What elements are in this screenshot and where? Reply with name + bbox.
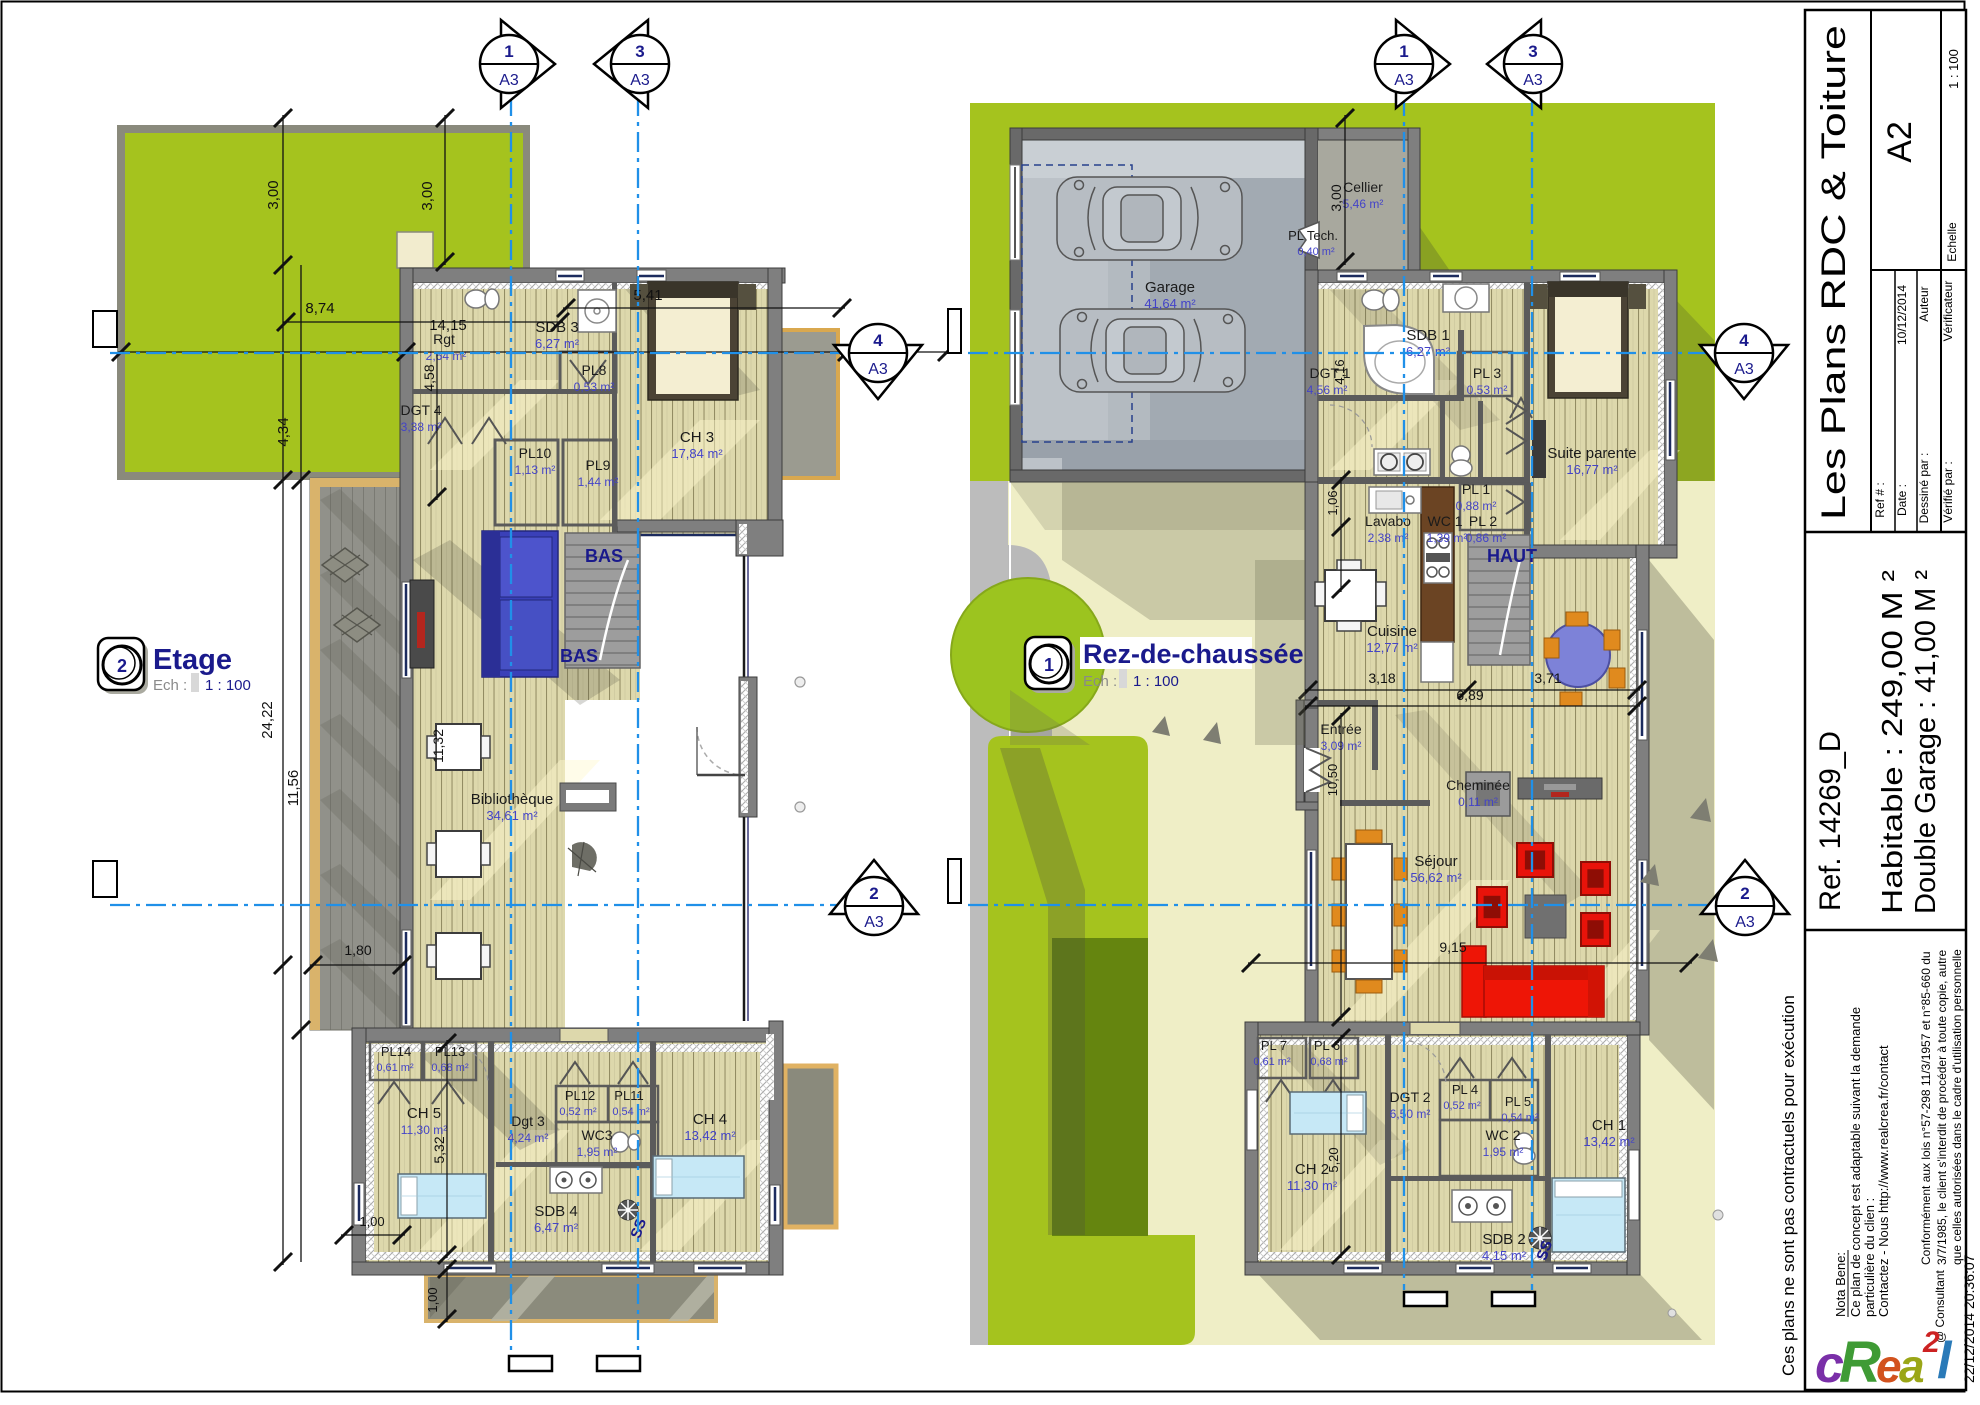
svg-text:SDB 1: SDB 1 bbox=[1406, 327, 1449, 344]
svg-text:Cellier: Cellier bbox=[1343, 179, 1383, 195]
svg-text:Cuisine: Cuisine bbox=[1367, 623, 1417, 640]
svg-text:9,15: 9,15 bbox=[1439, 939, 1466, 955]
svg-text:0,88 m²: 0,88 m² bbox=[1456, 499, 1497, 513]
svg-text:6,27 m²: 6,27 m² bbox=[535, 336, 580, 351]
svg-text:1,80: 1,80 bbox=[344, 942, 371, 958]
svg-text:CH 4: CH 4 bbox=[693, 1111, 727, 1128]
svg-text:6,27 m²: 6,27 m² bbox=[1406, 344, 1451, 359]
svg-text:WC3: WC3 bbox=[581, 1127, 612, 1143]
svg-text:3,00: 3,00 bbox=[419, 181, 436, 210]
svg-text:1,39 m²: 1,39 m² bbox=[1427, 531, 1468, 545]
svg-text:Vérificateur: Vérificateur bbox=[1941, 281, 1955, 342]
svg-text:CH 3: CH 3 bbox=[680, 429, 714, 446]
svg-text:56,62 m²: 56,62 m² bbox=[1410, 870, 1462, 885]
svg-text:Double Garage : 41,00 M ²: Double Garage : 41,00 M ² bbox=[1910, 570, 1942, 914]
svg-text:PL 4: PL 4 bbox=[1452, 1082, 1478, 1097]
svg-text:1: 1 bbox=[1044, 655, 1054, 675]
svg-text:DGT 2: DGT 2 bbox=[1390, 1089, 1431, 1105]
svg-text:PL 6: PL 6 bbox=[1314, 1038, 1340, 1053]
svg-text:4,15 m²: 4,15 m² bbox=[1482, 1248, 1527, 1263]
svg-text:10,50: 10,50 bbox=[1325, 764, 1340, 797]
svg-text:PL9: PL9 bbox=[586, 457, 611, 473]
svg-text:1,95 m²: 1,95 m² bbox=[577, 1145, 618, 1159]
svg-text:11,30 m²: 11,30 m² bbox=[1287, 1178, 1338, 1193]
svg-text:HAUT: HAUT bbox=[1487, 546, 1537, 566]
svg-text:0,54 m²: 0,54 m² bbox=[612, 1106, 650, 1118]
svg-text:3: 3 bbox=[635, 42, 644, 61]
svg-text:1 : 100: 1 : 100 bbox=[205, 677, 251, 694]
svg-text:Ce plan de concept est adaptab: Ce plan de concept est adaptable suivant… bbox=[1848, 1007, 1863, 1317]
svg-text:12,77 m²: 12,77 m² bbox=[1366, 640, 1418, 655]
svg-text:0,61 m²: 0,61 m² bbox=[376, 1062, 414, 1074]
svg-text:PL 2: PL 2 bbox=[1469, 513, 1497, 529]
svg-text:Dgt 3: Dgt 3 bbox=[511, 1113, 545, 1129]
svg-text:41,64 m²: 41,64 m² bbox=[1144, 296, 1196, 311]
svg-text:1,06: 1,06 bbox=[1325, 490, 1340, 515]
svg-text:PL14: PL14 bbox=[381, 1044, 411, 1059]
svg-text:A3: A3 bbox=[1734, 361, 1754, 378]
svg-text:0,54 m²: 0,54 m² bbox=[1501, 1112, 1539, 1124]
svg-text:BAS: BAS bbox=[585, 546, 623, 566]
svg-text:2: 2 bbox=[1740, 884, 1749, 903]
svg-text:PL12: PL12 bbox=[565, 1088, 595, 1103]
svg-text:Ech :: Ech : bbox=[153, 677, 187, 694]
svg-text:1,95 m²: 1,95 m² bbox=[1483, 1145, 1524, 1159]
svg-text:Vérifié par :: Vérifié par : bbox=[1941, 461, 1955, 522]
svg-text:8,74: 8,74 bbox=[305, 300, 334, 317]
svg-text:particulière du clien :: particulière du clien : bbox=[1862, 1198, 1877, 1317]
svg-text:que celles autorisées dans le: que celles autorisées dans le cadre d'ut… bbox=[1950, 949, 1964, 1265]
svg-text:0,53 m²: 0,53 m² bbox=[574, 380, 615, 394]
svg-text:PL10: PL10 bbox=[519, 445, 552, 461]
svg-text:PL 5: PL 5 bbox=[1505, 1094, 1531, 1109]
svg-text:1: 1 bbox=[1399, 42, 1408, 61]
svg-text:A3: A3 bbox=[630, 72, 650, 89]
svg-text:Conformément aux lois n°57-298: Conformément aux lois n°57-298 11/3/1957… bbox=[1919, 951, 1933, 1265]
svg-text:3,00: 3,00 bbox=[1328, 184, 1344, 211]
svg-text:Garage: Garage bbox=[1145, 279, 1195, 296]
svg-text:10/12/2014: 10/12/2014 bbox=[1895, 285, 1909, 345]
svg-text:Nota Bene:: Nota Bene: bbox=[1833, 1252, 1848, 1317]
svg-text:PL8: PL8 bbox=[582, 362, 607, 378]
svg-text:11,56: 11,56 bbox=[285, 770, 302, 806]
svg-text:PL Tech.: PL Tech. bbox=[1288, 228, 1338, 243]
svg-text:6,89: 6,89 bbox=[1456, 687, 1483, 703]
svg-text:Date :: Date : bbox=[1895, 484, 1909, 516]
svg-text:Ref # :: Ref # : bbox=[1873, 482, 1887, 517]
svg-text:SDB 2: SDB 2 bbox=[1482, 1231, 1525, 1248]
svg-text:0,40 m²: 0,40 m² bbox=[1297, 246, 1335, 258]
svg-text:4,58: 4,58 bbox=[421, 364, 437, 391]
svg-text:Etage: Etage bbox=[153, 644, 232, 676]
svg-text:4,24 m²: 4,24 m² bbox=[508, 1131, 549, 1145]
svg-text:1,13 m²: 1,13 m² bbox=[515, 463, 556, 477]
svg-text:4: 4 bbox=[1739, 331, 1749, 350]
svg-text:A3: A3 bbox=[864, 914, 884, 931]
svg-text:e: e bbox=[1876, 1340, 1902, 1392]
svg-text:Ces plans ne sont pas contract: Ces plans ne sont pas contractuels pour … bbox=[1779, 995, 1798, 1376]
svg-text:1,00: 1,00 bbox=[425, 1287, 440, 1312]
svg-text:Contactez - Nous http://www.re: Contactez - Nous http://www.realcrea.fr/… bbox=[1876, 1045, 1891, 1317]
svg-text:2: 2 bbox=[117, 656, 127, 676]
svg-text:A2: A2 bbox=[1881, 121, 1919, 163]
svg-text:WC 2: WC 2 bbox=[1486, 1127, 1521, 1143]
svg-text:0,11 m²: 0,11 m² bbox=[1458, 795, 1498, 809]
svg-text:6,50 m²: 6,50 m² bbox=[1390, 1107, 1431, 1121]
svg-text:R: R bbox=[1839, 1330, 1881, 1395]
svg-text:Les Plans RDC & Toiture: Les Plans RDC & Toiture bbox=[1815, 25, 1853, 520]
svg-text:4,34: 4,34 bbox=[275, 417, 292, 446]
svg-text:Rez-de-chaussée: Rez-de-chaussée bbox=[1083, 639, 1304, 669]
svg-text:0,52 m²: 0,52 m² bbox=[1443, 1100, 1481, 1112]
svg-text:5,32: 5,32 bbox=[431, 1136, 447, 1163]
svg-text:3,38 m²: 3,38 m² bbox=[401, 420, 442, 434]
svg-text:Dessiné par :: Dessiné par : bbox=[1917, 453, 1931, 524]
svg-text:CH 2: CH 2 bbox=[1295, 1161, 1329, 1178]
svg-text:3,00: 3,00 bbox=[265, 180, 282, 209]
svg-text:A3: A3 bbox=[1523, 72, 1543, 89]
svg-text:11,30 m²: 11,30 m² bbox=[401, 1123, 447, 1137]
svg-text:PL 7: PL 7 bbox=[1261, 1038, 1287, 1053]
svg-text:1: 1 bbox=[504, 42, 513, 61]
svg-text:16,77 m²: 16,77 m² bbox=[1566, 462, 1618, 477]
svg-text:WC 1: WC 1 bbox=[1428, 513, 1463, 529]
svg-text:PL11: PL11 bbox=[614, 1088, 643, 1103]
svg-text:1 : 100: 1 : 100 bbox=[1133, 673, 1179, 690]
svg-text:1,00: 1,00 bbox=[359, 1214, 384, 1229]
svg-text:0,86 m²: 0,86 m² bbox=[1466, 531, 1507, 545]
svg-text:CH 5: CH 5 bbox=[407, 1105, 441, 1122]
svg-text:3,71: 3,71 bbox=[1534, 670, 1561, 686]
svg-text:3,18: 3,18 bbox=[1368, 670, 1395, 686]
svg-text:1,44 m²: 1,44 m² bbox=[578, 475, 619, 489]
svg-text:Ref. 14269_D: Ref. 14269_D bbox=[1814, 731, 1847, 911]
svg-text:2: 2 bbox=[869, 884, 878, 903]
svg-text:A3: A3 bbox=[1735, 914, 1755, 931]
svg-text:a: a bbox=[1899, 1340, 1925, 1392]
svg-text:0,52 m²: 0,52 m² bbox=[559, 1106, 597, 1118]
svg-text:Ech :: Ech : bbox=[1083, 673, 1117, 690]
svg-text:A3: A3 bbox=[499, 72, 519, 89]
svg-text:A3: A3 bbox=[868, 361, 888, 378]
svg-text:3/7/1985, le client s'interdit: 3/7/1985, le client s'interdit de procéd… bbox=[1935, 950, 1949, 1265]
svg-text:34,61 m²: 34,61 m² bbox=[486, 808, 538, 823]
svg-text:SDB 4: SDB 4 bbox=[534, 1203, 577, 1220]
svg-text:4,16: 4,16 bbox=[1332, 359, 1347, 384]
svg-text:l: l bbox=[1937, 1332, 1953, 1390]
svg-text:22/12/2014 20:36:07: 22/12/2014 20:36:07 bbox=[1961, 1254, 1977, 1383]
svg-text:24,22: 24,22 bbox=[259, 701, 276, 739]
svg-text:0,68 m²: 0,68 m² bbox=[431, 1062, 469, 1074]
svg-text:Echelle: Echelle bbox=[1945, 222, 1959, 262]
svg-text:A3: A3 bbox=[1394, 72, 1414, 89]
svg-text:2,38 m²: 2,38 m² bbox=[1368, 531, 1409, 545]
svg-text:PL 3: PL 3 bbox=[1473, 365, 1501, 381]
svg-text:1 : 100: 1 : 100 bbox=[1946, 49, 1961, 89]
svg-text:Auteur: Auteur bbox=[1917, 286, 1931, 321]
svg-text:11,32: 11,32 bbox=[430, 729, 446, 763]
svg-text:4: 4 bbox=[873, 331, 883, 350]
svg-text:3: 3 bbox=[1528, 42, 1537, 61]
svg-text:13,42 m²: 13,42 m² bbox=[684, 1128, 736, 1143]
svg-text:DGT 4: DGT 4 bbox=[401, 402, 442, 418]
svg-text:5,20: 5,20 bbox=[1326, 1147, 1341, 1172]
svg-text:6,47 m²: 6,47 m² bbox=[534, 1220, 579, 1235]
svg-text:PL 1: PL 1 bbox=[1462, 481, 1490, 497]
svg-text:Suite parente: Suite parente bbox=[1547, 445, 1636, 462]
svg-text:5,46 m²: 5,46 m² bbox=[1343, 197, 1384, 211]
svg-text:2,64 m²: 2,64 m² bbox=[426, 349, 467, 363]
svg-text:17,84 m²: 17,84 m² bbox=[671, 446, 723, 461]
svg-text:0,53 m²: 0,53 m² bbox=[1467, 383, 1508, 397]
svg-text:Cheminée: Cheminée bbox=[1446, 777, 1510, 793]
svg-text:Habitable : 249,00 M ²: Habitable : 249,00 M ² bbox=[1877, 570, 1909, 914]
svg-text:0,68 m²: 0,68 m² bbox=[1310, 1056, 1348, 1068]
svg-text:BAS: BAS bbox=[560, 646, 598, 666]
svg-text:13,42 m²: 13,42 m² bbox=[1583, 1134, 1635, 1149]
svg-text:CH 1: CH 1 bbox=[1592, 1117, 1626, 1134]
svg-text:0,61 m²: 0,61 m² bbox=[1253, 1056, 1291, 1068]
svg-text:14,15: 14,15 bbox=[429, 317, 467, 334]
svg-text:Séjour: Séjour bbox=[1414, 853, 1457, 870]
